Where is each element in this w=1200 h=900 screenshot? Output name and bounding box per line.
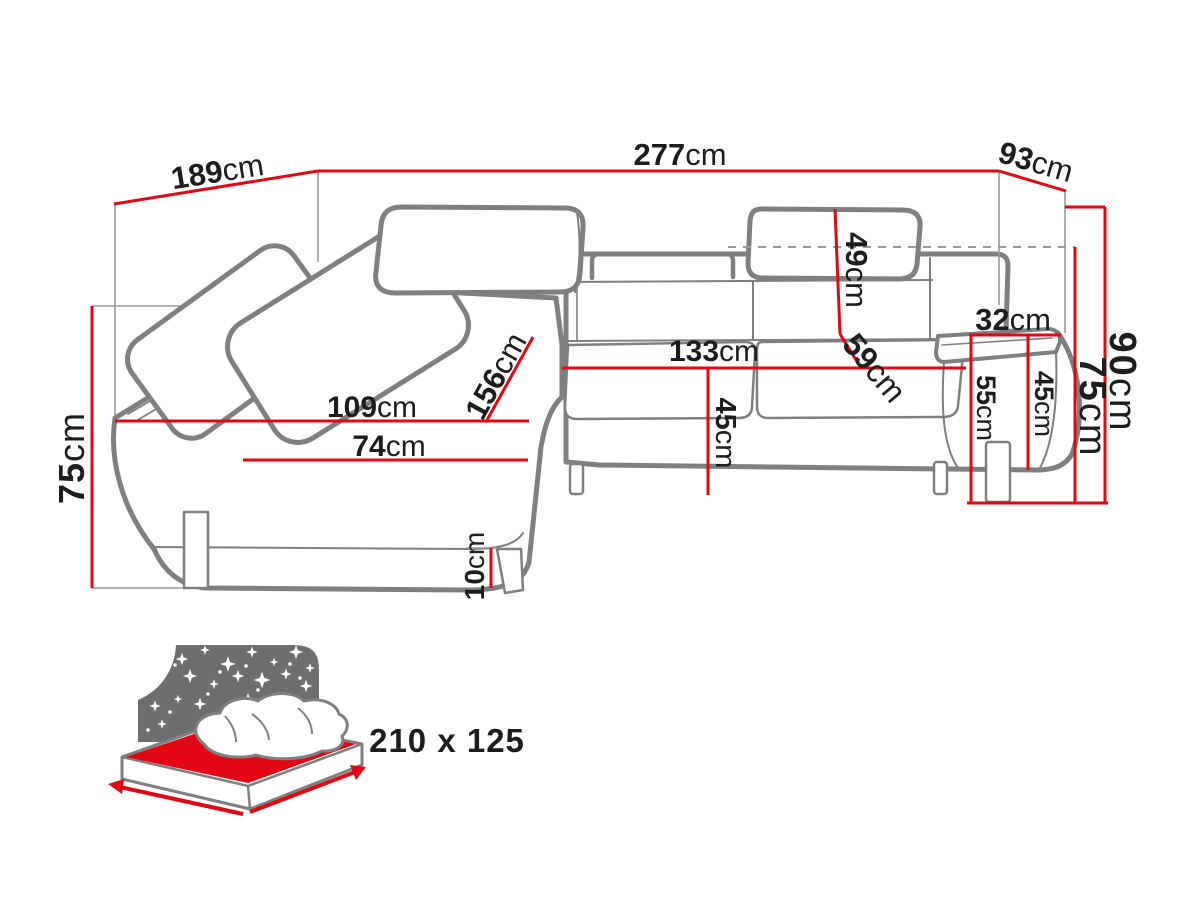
sleeping-function-icon: 210 x 125: [108, 645, 525, 814]
sofa-drawing: [114, 207, 1080, 593]
sleeping-area-label: 210 x 125: [369, 722, 525, 759]
dimension-label-109: 109cm: [327, 391, 417, 424]
dimension-label-189: 189cm: [169, 147, 266, 196]
star-dot: [173, 663, 177, 667]
sofa-leg-right: [934, 462, 947, 494]
sofa-dimension-diagram: 189cm 277cm 93cm 75cm 109cm 74cm 156cm 1…: [0, 0, 1200, 900]
dimension-label-75-left: 75cm: [51, 412, 92, 504]
dimension-label-90: 90cm: [1101, 332, 1143, 433]
dimension-label-45-middle: 45cm: [709, 398, 741, 469]
dimension-label-10: 10cm: [459, 532, 490, 600]
star-dot: [244, 664, 248, 668]
star-dot: [288, 662, 292, 666]
dimension-label-74: 74cm: [352, 430, 425, 463]
star-dot: [168, 710, 172, 714]
chaise-leg-left: [184, 512, 208, 588]
dimension-label-45-right: 45cm: [1029, 371, 1059, 437]
star-dot: [298, 676, 302, 680]
star-dot: [218, 670, 222, 674]
armrest-leg: [986, 442, 1010, 502]
headrest-left: [376, 207, 583, 293]
star-dot: [206, 692, 210, 696]
dimension-label-49: 49cm: [839, 232, 874, 308]
dimension-label-32: 32cm: [975, 302, 1051, 337]
bed-arrow-left-head: [108, 779, 124, 794]
dimension-label-55: 55cm: [971, 375, 1001, 441]
dimension-label-133: 133cm: [669, 335, 759, 368]
star-dot: [256, 688, 260, 692]
dimension-label-277: 277cm: [633, 137, 726, 172]
sofa-leg-left: [570, 464, 583, 494]
star-dot: [146, 728, 150, 732]
